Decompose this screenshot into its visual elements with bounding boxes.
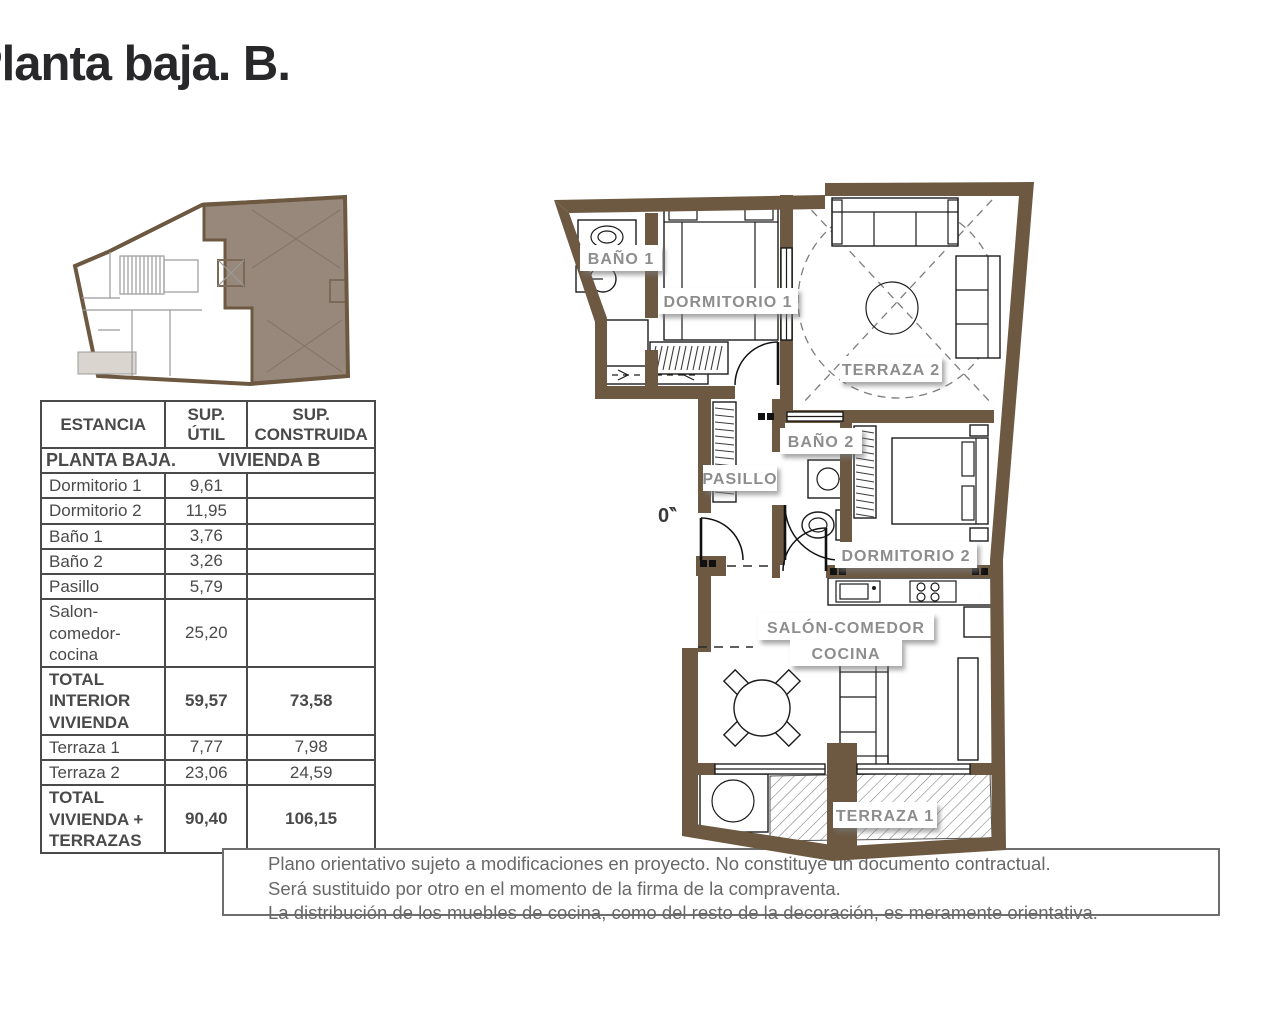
svg-text:DORMITORIO 2: DORMITORIO 2 [841,548,970,565]
table-row: Dormitorio 1 9,61 [41,473,375,498]
table-row: Baño 1 3,76 [41,524,375,549]
room-label-pasillo: PASILLO [702,465,777,491]
svg-text:SALÓN-COMEDOR: SALÓN-COMEDOR [767,618,925,637]
table-row-total-interior: TOTAL INTERIOR VIVIENDA 59,57 73,58 [41,667,375,735]
sideboard [958,658,978,760]
table-row: Dormitorio 2 11,95 [41,498,375,523]
bed-dormitorio1 [664,204,778,340]
svg-text:BAÑO 2: BAÑO 2 [788,431,854,451]
nightstand [970,528,988,541]
table-row: Pasillo 5,79 [41,574,375,599]
svg-text:BAÑO 1: BAÑO 1 [588,248,654,268]
unit-b-highlight [204,197,348,383]
floor-plan: 0‶ BAÑO 1 DORMITORIO 1 TERRAZA 2 BAÑO 2 … [540,170,1060,870]
wardrobe-dormitorio1 [650,342,728,374]
table-row: Terraza 1 7,77 7,98 [41,735,375,760]
key-location-plan [62,180,358,392]
bed-dormitorio2 [892,425,988,541]
text-fragment: 0‶ [658,505,677,527]
page-title: Planta baja. B. [0,36,360,92]
col-sup-construida: SUP. CONSTRUIDA [247,401,375,448]
terraza1-floor [700,774,768,832]
col-sup-util: SUP. ÚTIL [165,401,247,448]
room-label-terraza1: TERRAZA 1 [833,802,937,828]
room-label-bano2: BAÑO 2 [780,428,862,454]
room-label-dormitorio1: DORMITORIO 1 [658,288,798,314]
table-section-row: PLANTA BAJA. VIVIENDA B [41,448,375,473]
svg-text:TERRAZA 1: TERRAZA 1 [836,808,934,825]
sofa-terraza2-top [832,198,958,246]
table-row: Terraza 2 23,06 24,59 [41,760,375,785]
room-label-cocina: COCINA [790,640,902,666]
room-label-terraza2: TERRAZA 2 [840,356,942,382]
section-subtitle: VIVIENDA B [218,450,320,471]
page: Planta baja. B. ESTANCIA SUP. ÚTIL SUP. … [0,0,1280,1024]
table-row: Baño 2 3,26 [41,549,375,574]
dining-set [724,670,800,746]
room-label-dormitorio2: DORMITORIO 2 [835,542,977,568]
stair-landing [164,260,198,292]
keyplan-room [78,352,136,374]
disclaimer-line-2: Será sustituido por otro en el momento d… [268,878,1218,900]
stair-treads [124,256,160,294]
nightstand [970,425,988,436]
table-row: Salon- comedor- cocina 25,20 [41,599,375,667]
col-estancia: ESTANCIA [41,401,165,448]
room-label-salon-comedor: SALÓN-COMEDOR [758,613,934,640]
svg-text:COCINA: COCINA [811,646,880,663]
fridge [964,607,994,637]
table-header-row: ESTANCIA SUP. ÚTIL SUP. CONSTRUIDA [41,401,375,448]
section-title: PLANTA BAJA. [46,450,176,471]
stairs [120,256,164,294]
toilet-icon [802,512,834,538]
sofa-terraza2-right [956,256,1000,358]
dining-table [734,680,790,736]
areas-table: ESTANCIA SUP. ÚTIL SUP. CONSTRUIDA PLANT… [40,400,376,854]
page-title-clip: Planta baja. B. [0,36,360,116]
table-row-total-vivienda: TOTAL VIVIENDA + TERRAZAS 90,40 106,15 [41,785,375,853]
svg-text:DORMITORIO 1: DORMITORIO 1 [663,294,792,311]
room-label-bano1: BAÑO 1 [580,245,662,271]
disclaimer-line-3: La distribución de los muebles de cocina… [268,902,1218,924]
bathroom1-fixtures [576,220,648,382]
svg-text:TERRAZA 2: TERRAZA 2 [842,362,940,379]
svg-text:PASILLO: PASILLO [702,471,777,488]
